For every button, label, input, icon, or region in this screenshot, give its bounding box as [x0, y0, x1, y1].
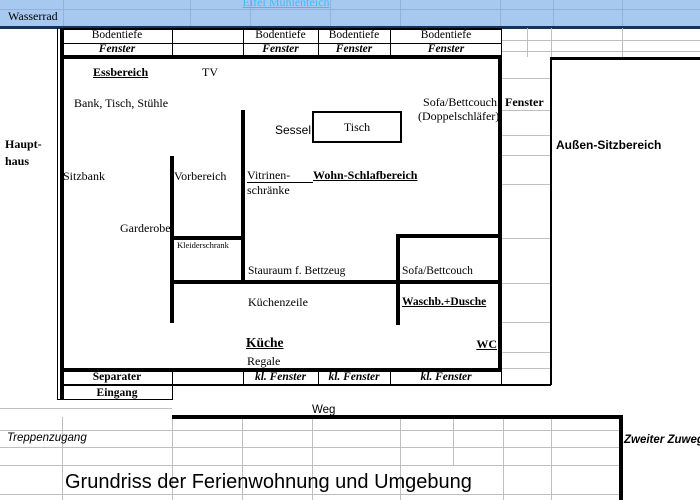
essbereich-label: Essbereich	[93, 66, 148, 79]
window-header-bottom: Fenster	[62, 43, 172, 55]
gridline	[0, 494, 622, 495]
doppelschlaefer-label: (Doppelschläfer)	[418, 110, 497, 123]
gridline	[190, 0, 191, 26]
window-header-bottom: Fenster	[318, 43, 390, 55]
weg-label: Weg	[312, 404, 335, 416]
gridline	[502, 135, 551, 136]
gridline	[502, 283, 551, 284]
separater-label: Separater	[62, 371, 172, 383]
page-title: Grundriss der Ferienwohnung und Umgebung	[65, 472, 472, 493]
sofa-bettcouch2-label: Sofa/Bettcouch	[402, 265, 473, 277]
gridline	[453, 419, 454, 465]
wc-label: WC	[460, 338, 497, 351]
hyperlink-cell[interactable]: Eifel Mühlenteich	[236, 0, 336, 10]
border-line	[172, 372, 173, 384]
wall-segment	[551, 57, 700, 60]
spreadsheet-canvas: Eifel Mühlenteich Wasserrad Bodentiefe F…	[0, 0, 700, 500]
kueche-label: Küche	[246, 336, 284, 350]
window-header-top: Bodentiefe	[318, 29, 390, 41]
wall-segment	[619, 415, 623, 500]
tv-label: TV	[202, 66, 218, 79]
window-header-top: Bodentiefe	[62, 29, 172, 41]
border-line	[58, 399, 173, 400]
wall-segment	[62, 55, 502, 59]
haupthaus-label-line1: Haupt-	[5, 138, 42, 151]
gridline	[502, 51, 700, 52]
wall-segment	[241, 110, 245, 283]
border-line	[172, 28, 173, 57]
garderobe-label: Garderobe	[120, 222, 171, 235]
kl-fenster-label: kl. Fenster	[243, 371, 318, 383]
haupthaus-label-line2: haus	[5, 155, 29, 168]
tisch-label: Tisch	[344, 121, 370, 134]
window-header-top: Bodentiefe	[243, 29, 318, 41]
gridline	[500, 0, 501, 26]
window-header-bottom: Fenster	[243, 43, 318, 55]
window-header-bottom: Fenster	[390, 43, 502, 55]
gridline	[551, 28, 552, 59]
gridline	[551, 419, 552, 500]
gridline	[63, 0, 64, 26]
wasserrad-label: Wasserrad	[8, 10, 58, 23]
border-line	[57, 28, 58, 400]
zweiter-zuweg-label: Zweiter Zuweg	[624, 434, 700, 446]
gridline	[0, 9, 700, 10]
gridline	[527, 28, 528, 57]
gridline	[622, 28, 623, 59]
gridline	[0, 408, 172, 409]
gridline	[553, 0, 554, 26]
gridline	[502, 184, 551, 185]
sofa-bettcouch-label: Sofa/Bettcouch	[420, 96, 497, 109]
top-band: Eifel Mühlenteich Wasserrad	[0, 0, 700, 26]
treppenzugang-label: Treppenzugang	[7, 432, 87, 444]
eingang-label: Eingang	[62, 387, 172, 399]
gridline	[502, 238, 551, 239]
gridline	[502, 368, 551, 369]
bank-tisch-stuehle-label: Bank, Tisch, Stühle	[74, 97, 168, 110]
waschbecken-dusche-label: Waschb.+Dusche	[402, 296, 486, 308]
gridline	[62, 417, 63, 500]
window-header-top: Bodentiefe	[390, 29, 502, 41]
gridline	[622, 0, 623, 26]
wohn-schlafbereich-label: Wohn-Schlafbereich	[313, 169, 417, 182]
kl-fenster-label: kl. Fenster	[318, 371, 390, 383]
gridline	[502, 78, 551, 79]
tisch-box: Tisch	[312, 111, 402, 143]
sessel-label: Sessel	[261, 124, 311, 137]
kuechenzeile-label: Küchenzeile	[248, 296, 308, 309]
wall-segment	[60, 28, 64, 400]
vorbereich-label: Vorbereich	[174, 170, 226, 183]
gridline	[0, 430, 622, 431]
stauraum-label: Stauraum f. Bettzeug	[248, 265, 345, 277]
gridline	[502, 322, 551, 323]
gridline	[502, 110, 551, 111]
wall-segment	[170, 280, 502, 284]
sitzbank-label: Sitzbank	[63, 170, 105, 183]
gridline	[400, 0, 401, 26]
border-line	[172, 384, 173, 400]
kl-fenster-label: kl. Fenster	[390, 371, 502, 383]
kleiderschrank-label: Kleiderschrank	[177, 241, 229, 250]
gridline	[502, 155, 551, 156]
regale-label: Regale	[247, 355, 280, 368]
border-line	[550, 57, 552, 385]
wall-segment	[498, 57, 502, 372]
gridline	[502, 352, 551, 353]
wall-segment	[396, 234, 502, 238]
vitrinenschraenke-label-line2: schränke	[247, 184, 290, 197]
fenster-side-label: Fenster	[505, 96, 544, 109]
gridline	[0, 447, 622, 448]
gridline	[503, 419, 504, 500]
vitrinenschraenke-label-line1: Vitrinen-	[247, 169, 290, 182]
border-line	[62, 384, 551, 386]
gridline	[502, 40, 700, 41]
gridline	[0, 465, 622, 466]
aussen-sitzbereich-label: Außen-Sitzbereich	[556, 139, 661, 152]
wall-segment	[172, 415, 623, 419]
